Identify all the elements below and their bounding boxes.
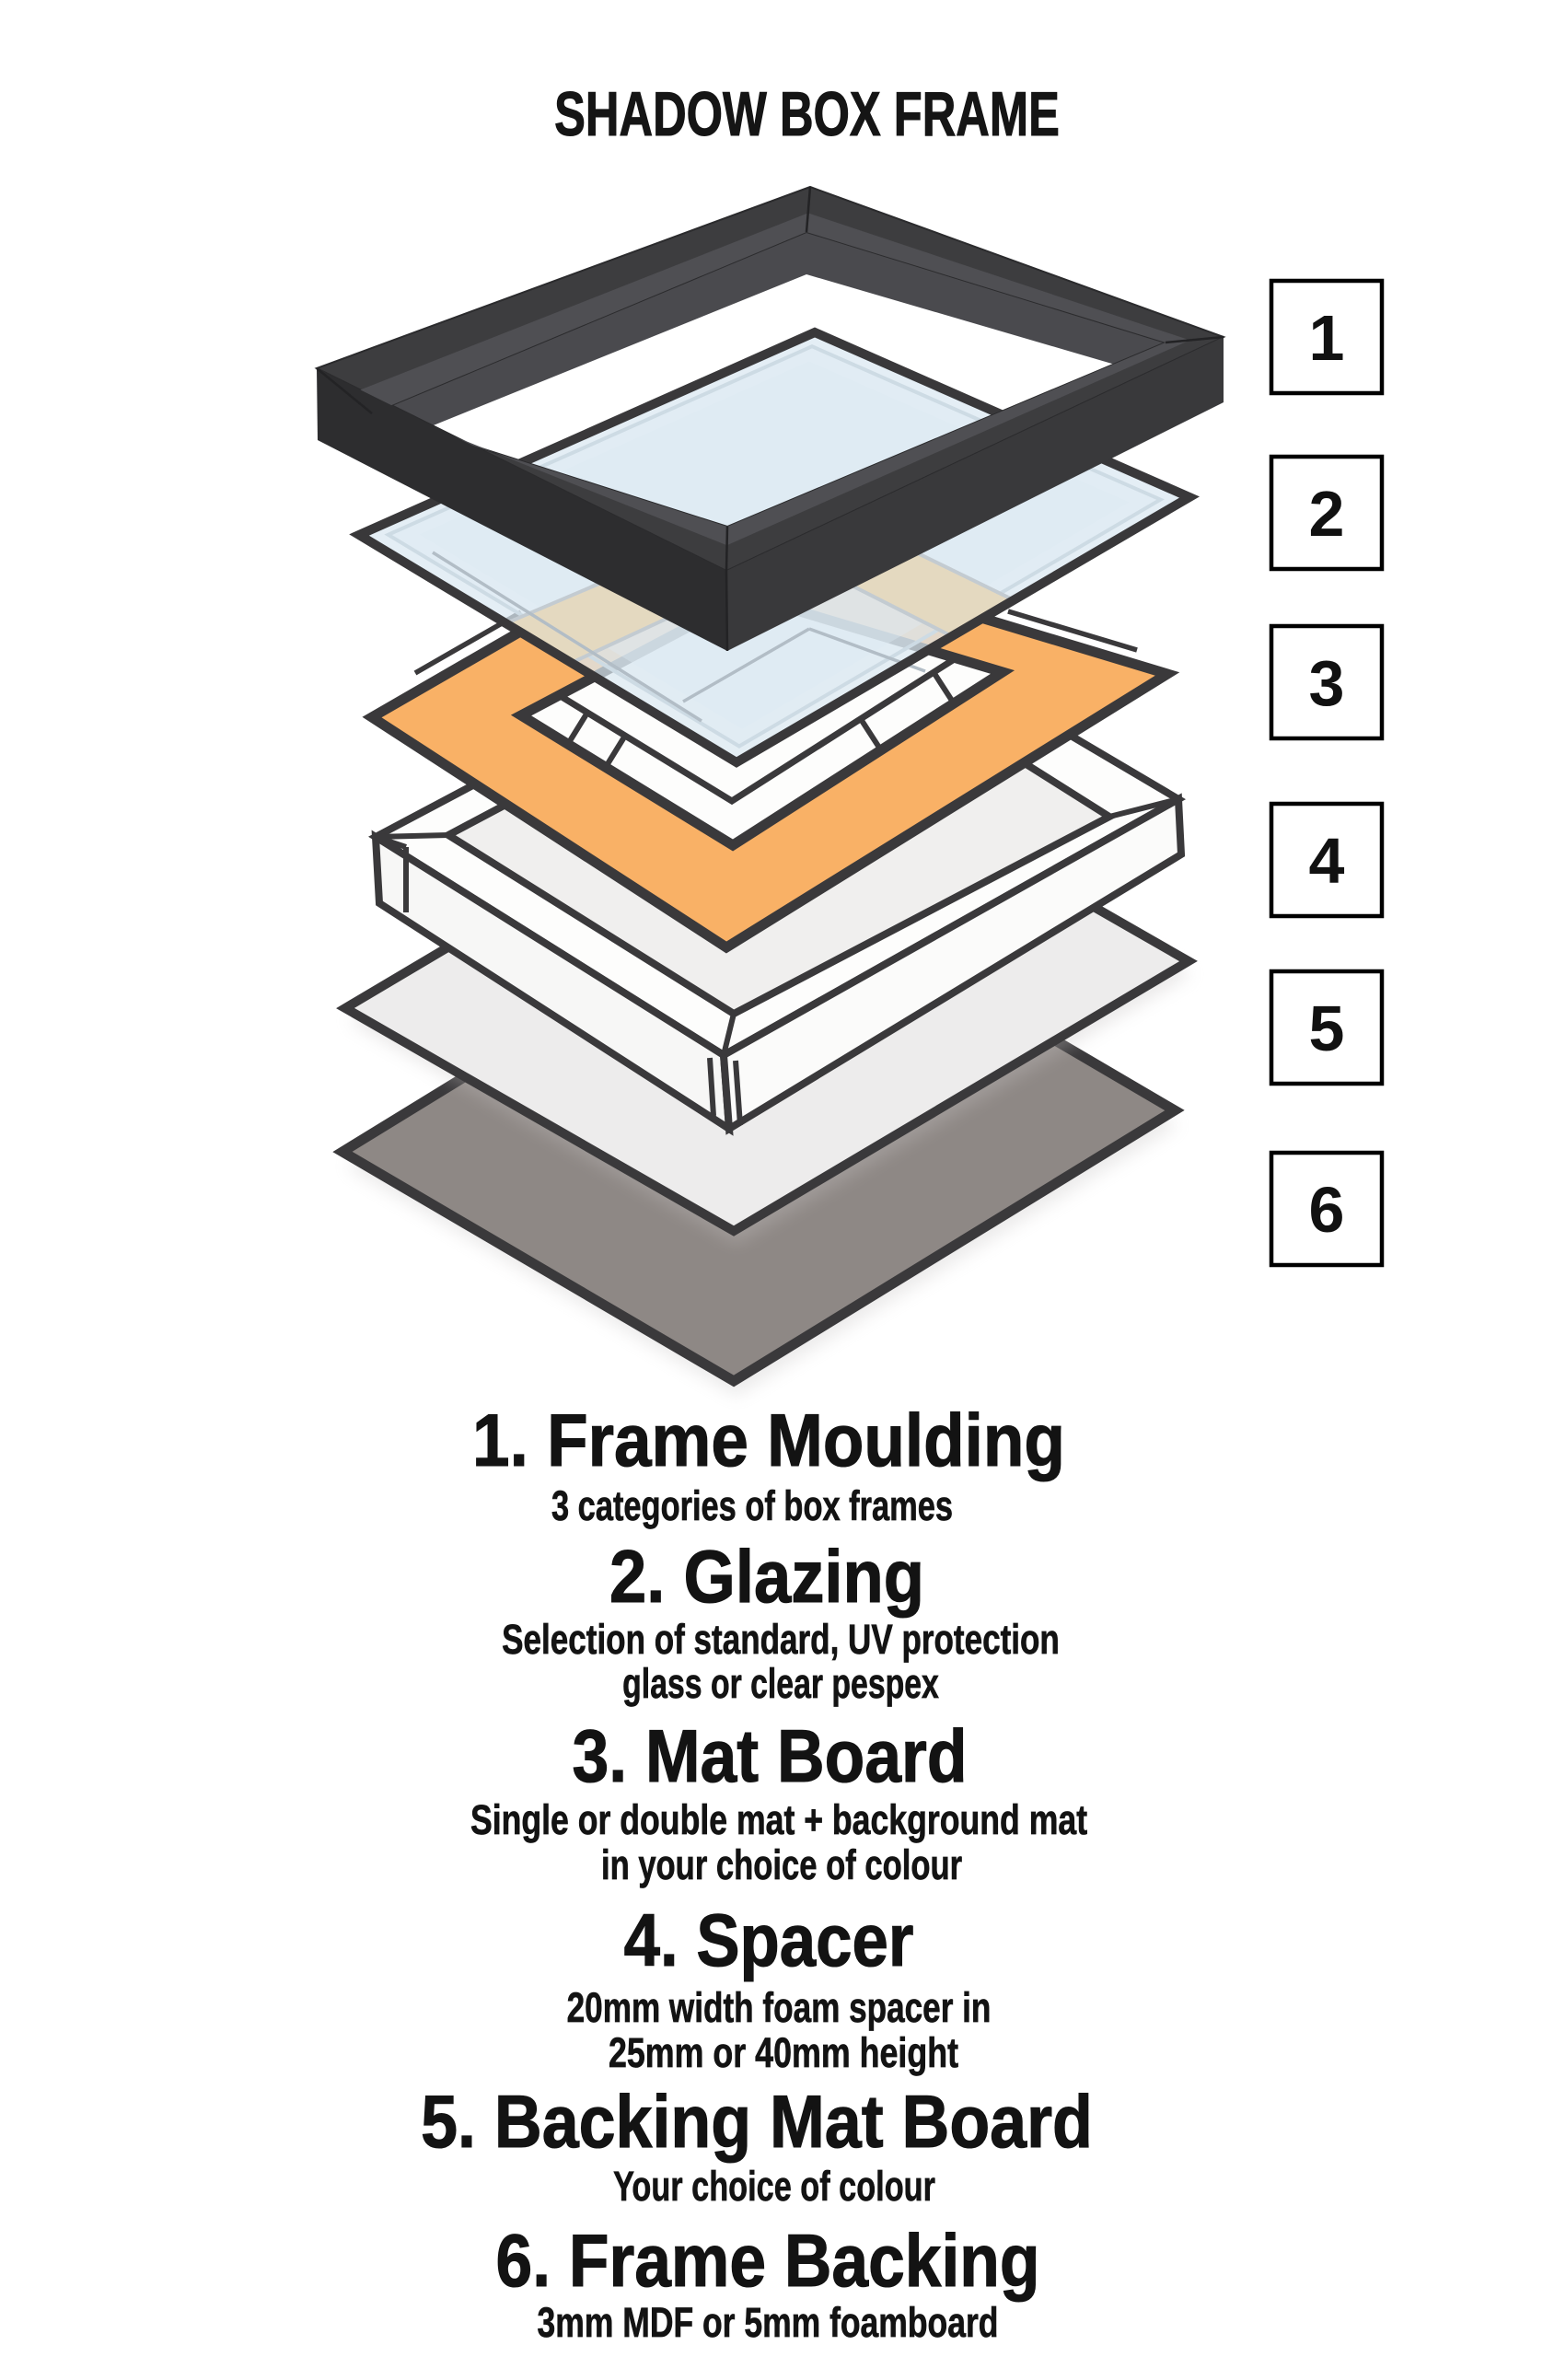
svg-text:Selection of standard, UV prot: Selection of standard, UV protection [502,1616,1060,1663]
svg-text:6. Frame Backing: 6. Frame Backing [496,2220,1040,2303]
svg-text:4: 4 [1309,825,1345,897]
svg-text:25mm or 40mm height: 25mm or 40mm height [609,2029,958,2076]
svg-text:in your choice of colour: in your choice of colour [601,1842,962,1888]
svg-text:Your choice of colour: Your choice of colour [613,2165,935,2210]
svg-text:Single or double mat + backgro: Single or double mat + background mat [470,1796,1088,1843]
svg-text:5: 5 [1309,993,1345,1064]
svg-text:20mm width foam spacer in: 20mm width foam spacer in [567,1984,992,2031]
svg-text:3 categories of box frames: 3 categories of box frames [551,1484,953,1529]
svg-text:3: 3 [1309,647,1345,719]
svg-text:glass or clear pespex: glass or clear pespex [622,1661,939,1707]
svg-text:1. Frame Moulding: 1. Frame Moulding [472,1399,1065,1481]
svg-text:6: 6 [1309,1174,1345,1246]
svg-text:SHADOW BOX FRAME: SHADOW BOX FRAME [554,79,1060,149]
svg-text:3mm MDF or 5mm foamboard: 3mm MDF or 5mm foamboard [538,2299,999,2346]
svg-text:2: 2 [1309,478,1345,550]
svg-text:2. Glazing: 2. Glazing [609,1535,924,1619]
svg-text:3. Mat Board: 3. Mat Board [572,1715,967,1798]
svg-text:1: 1 [1309,302,1345,374]
svg-text:4. Spacer: 4. Spacer [624,1899,914,1983]
svg-text:5. Backing Mat Board: 5. Backing Mat Board [421,2081,1093,2164]
